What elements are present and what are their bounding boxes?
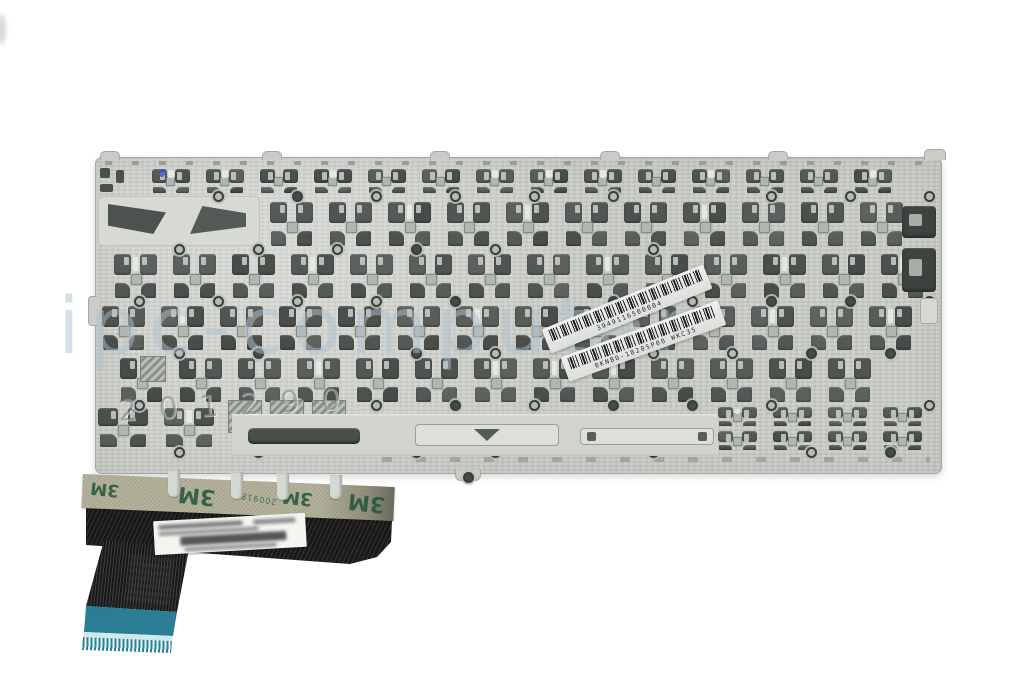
stamped-notch bbox=[587, 432, 596, 441]
key-cutout bbox=[582, 168, 624, 193]
esc-cutout bbox=[100, 184, 113, 192]
key-cutout bbox=[690, 168, 732, 193]
rivet bbox=[450, 400, 461, 411]
key-cutout bbox=[563, 201, 610, 248]
key-cutout bbox=[820, 253, 867, 300]
spacebar-slot bbox=[580, 428, 714, 445]
key-cutout bbox=[386, 201, 433, 248]
key-cutout bbox=[716, 431, 759, 450]
metal-finger-tab bbox=[168, 470, 180, 497]
tape-batch-code: 200918 bbox=[240, 491, 278, 506]
rivet bbox=[885, 447, 896, 458]
key-cutout bbox=[826, 357, 873, 404]
rivet bbox=[806, 348, 817, 359]
3m-logo: 3M bbox=[177, 481, 217, 510]
key-cutout bbox=[420, 168, 462, 193]
spacebar-slot bbox=[248, 428, 360, 444]
key-cutout bbox=[258, 168, 300, 193]
key-cutout bbox=[858, 201, 905, 248]
rivet bbox=[766, 400, 777, 411]
key-cutout bbox=[826, 431, 869, 450]
rivet bbox=[371, 191, 382, 202]
rivet bbox=[490, 244, 501, 255]
key-cutout bbox=[867, 305, 914, 352]
key-cutout bbox=[636, 168, 678, 193]
rivet bbox=[463, 472, 474, 483]
rivet bbox=[924, 400, 935, 411]
key-cutout bbox=[798, 168, 840, 193]
key-cutout bbox=[702, 253, 749, 300]
rivet bbox=[450, 191, 461, 202]
metal-finger-tab bbox=[231, 472, 243, 499]
key-cutout bbox=[826, 407, 869, 426]
spacebar-area bbox=[232, 414, 718, 456]
stamped-tab bbox=[920, 298, 938, 324]
rivet bbox=[608, 191, 619, 202]
key-cutout bbox=[622, 201, 669, 248]
key-cutout bbox=[771, 407, 814, 426]
key-cutout bbox=[327, 201, 374, 248]
metal-finger-tab bbox=[277, 473, 289, 500]
rivet bbox=[253, 244, 264, 255]
rivet bbox=[885, 348, 896, 359]
rivet bbox=[371, 400, 382, 411]
key-cutout bbox=[740, 201, 787, 248]
key-cutout bbox=[474, 168, 516, 193]
rivet bbox=[213, 191, 224, 202]
backspace-cutout bbox=[902, 206, 936, 238]
product-photo: 2 0 1 2 9 0 ipc-computer 3M 3M 3M 3M 200… bbox=[0, 0, 1024, 680]
rivet bbox=[806, 447, 817, 458]
key-cutout bbox=[881, 407, 924, 426]
stamped-notch bbox=[698, 432, 707, 441]
key-cutout bbox=[528, 168, 570, 193]
key-cutout bbox=[749, 305, 796, 352]
rivet bbox=[766, 191, 777, 202]
rivet bbox=[529, 191, 540, 202]
rivet bbox=[924, 191, 935, 202]
rivet bbox=[174, 447, 185, 458]
key-cutout bbox=[268, 201, 315, 248]
key-cutout bbox=[150, 168, 192, 193]
key-cutout bbox=[504, 201, 551, 248]
3m-logo: 3M bbox=[347, 488, 387, 517]
key-cutout bbox=[852, 168, 894, 193]
3m-logo: 3M bbox=[89, 477, 120, 500]
rivet bbox=[727, 348, 738, 359]
key-cutout bbox=[681, 201, 728, 248]
key-cutout bbox=[716, 407, 759, 426]
blurred-text-line bbox=[253, 517, 295, 524]
key-cutout bbox=[445, 201, 492, 248]
key-cutout bbox=[808, 305, 855, 352]
rivet bbox=[332, 244, 343, 255]
rivet bbox=[411, 244, 422, 255]
rivet bbox=[174, 244, 185, 255]
metal-finger-tab bbox=[330, 475, 342, 499]
esc-cutout bbox=[100, 168, 110, 178]
spacebar-stabilizer-slot bbox=[415, 424, 559, 446]
key-cutout bbox=[799, 201, 846, 248]
key-cutout bbox=[767, 357, 814, 404]
rivet bbox=[608, 400, 619, 411]
rivet bbox=[766, 296, 777, 307]
key-cutout bbox=[204, 168, 246, 193]
key-cutout bbox=[708, 357, 755, 404]
enter-cutout bbox=[902, 248, 936, 292]
key-cutout bbox=[312, 168, 354, 193]
rivet bbox=[687, 400, 698, 411]
rivet bbox=[845, 296, 856, 307]
key-cutout bbox=[744, 168, 786, 193]
rivet bbox=[845, 191, 856, 202]
esc-cutout bbox=[116, 170, 124, 183]
cable-print-mark bbox=[126, 556, 174, 604]
key-cutout bbox=[761, 253, 808, 300]
rivet bbox=[529, 400, 540, 411]
rivet bbox=[292, 191, 303, 202]
rivet bbox=[648, 244, 659, 255]
stamped-notch bbox=[474, 429, 500, 441]
key-cutout bbox=[366, 168, 408, 193]
